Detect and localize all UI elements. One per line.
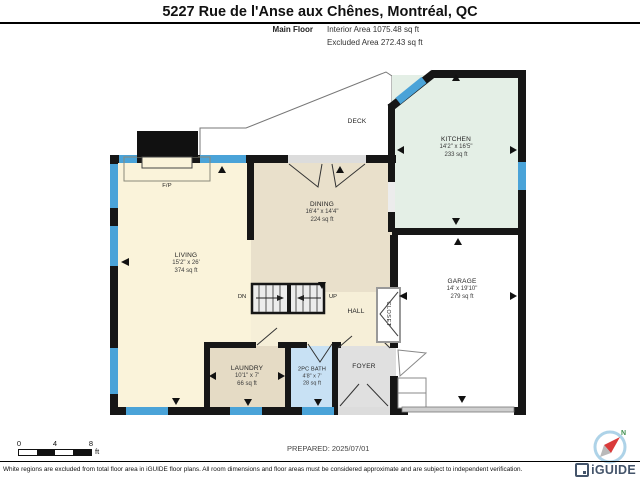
iguide-logo: iGUIDE bbox=[575, 463, 636, 477]
compass-north-label: N bbox=[621, 430, 626, 437]
room-label-hall: HALL bbox=[347, 308, 364, 316]
stairs-up-label: UP bbox=[329, 294, 337, 300]
footer-divider bbox=[0, 461, 640, 462]
room-label-closet: CLOSET bbox=[385, 301, 391, 326]
room-label-laundry: LAUNDRY 10'1" x 7' 66 sq ft bbox=[231, 365, 263, 389]
disclaimer-text: White regions are excluded from total fl… bbox=[3, 466, 563, 473]
room-label-deck: DECK bbox=[348, 118, 367, 126]
prepared-date: PREPARED: 2025/07/01 bbox=[287, 444, 369, 453]
room-label-garage: GARAGE 14' x 19'10" 279 sq ft bbox=[447, 278, 478, 302]
iguide-logo-text: iGUIDE bbox=[591, 463, 636, 477]
room-label-kitchen: KITCHEN 14'2" x 16'5" 233 sq ft bbox=[440, 136, 473, 160]
scale-seg bbox=[55, 450, 73, 455]
scale-unit: ft bbox=[95, 447, 99, 456]
scale-seg bbox=[19, 450, 37, 455]
fireplace-label: F/P bbox=[162, 183, 172, 191]
stairs-graphic bbox=[252, 284, 324, 313]
room-label-living: LIVING 15'2" x 26' 374 sq ft bbox=[172, 252, 199, 276]
stairs-down-label: DN bbox=[238, 294, 246, 300]
scale-seg bbox=[73, 450, 91, 455]
floor-plan-graphic: N bbox=[0, 0, 640, 480]
compass-icon: N bbox=[595, 430, 626, 462]
room-label-dining: DINING 16'4" x 14'4" 224 sq ft bbox=[306, 201, 339, 225]
scale-seg bbox=[37, 450, 55, 455]
scale-tick-8: 8 bbox=[89, 439, 93, 448]
scale-bar: 0 4 8 bbox=[18, 449, 92, 456]
room-label-bath: 2PC BATH 4'8" x 7' 28 sq ft bbox=[298, 366, 326, 387]
room-label-foyer: FOYER bbox=[352, 363, 375, 371]
scale-tick-0: 0 bbox=[17, 439, 21, 448]
iguide-logo-icon bbox=[575, 463, 589, 477]
scale-tick-4: 4 bbox=[53, 439, 57, 448]
